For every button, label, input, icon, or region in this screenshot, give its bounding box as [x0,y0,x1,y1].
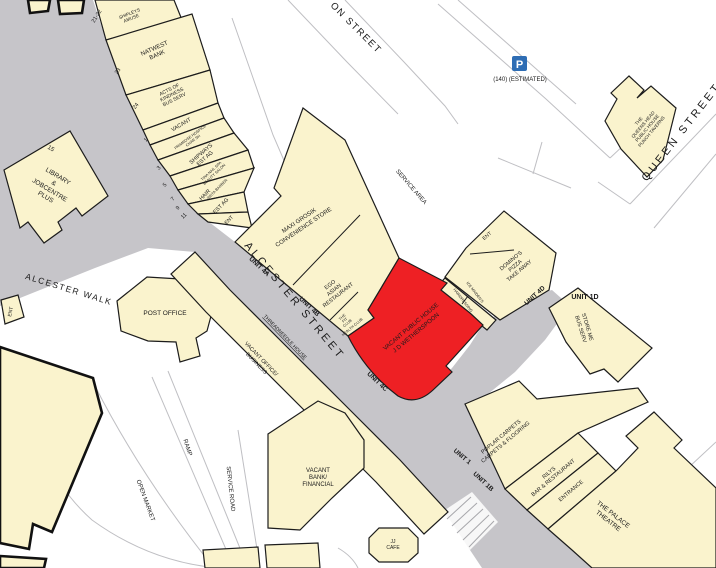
map-canvas: ALCESTER STREET ALCESTER WALK QUEEN STRE… [0,0,716,568]
label-post-office: POST OFFICE [143,310,187,317]
building-fragment [0,556,46,568]
unit-label-1d: UNIT 1D [571,294,598,301]
goad-retail-map: ALCESTER STREET ALCESTER WALK QUEEN STRE… [0,0,716,568]
parking-symbol: P [516,59,523,71]
building-fragment [265,543,320,568]
building-fragment [203,547,260,568]
building-fragment [28,0,50,13]
parking-capacity: (140) (ESTIMATED) [493,77,547,83]
building-fragment [58,0,84,14]
